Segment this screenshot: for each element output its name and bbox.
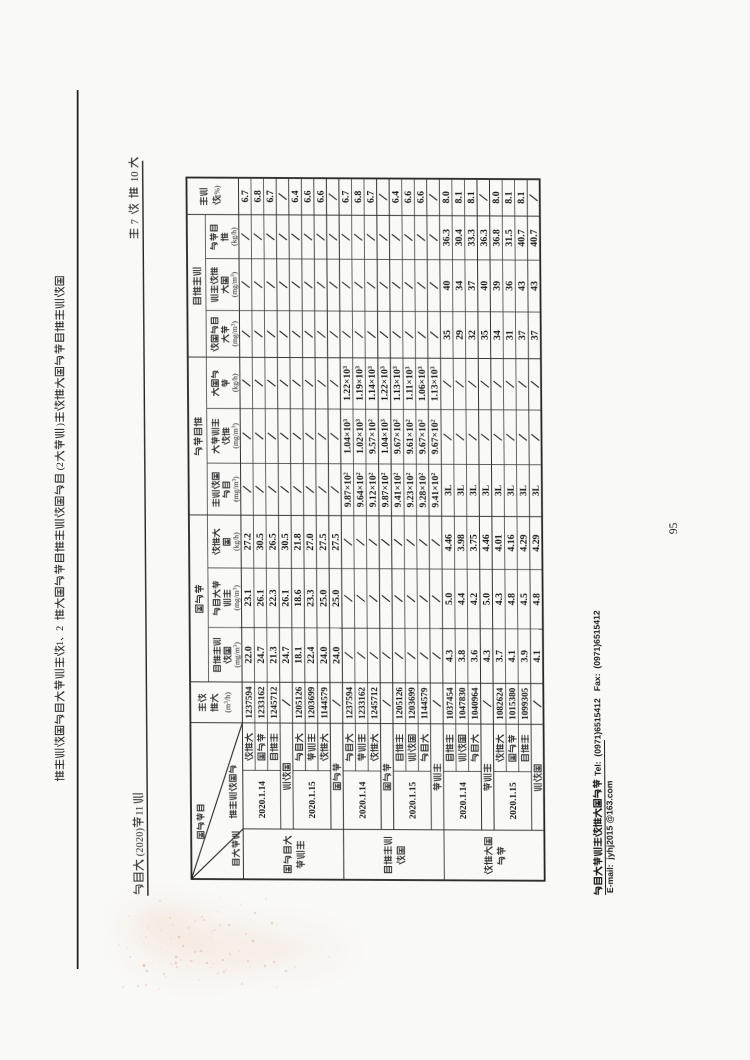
- svg-text:1.14×103: 1.14×103: [367, 366, 378, 401]
- svg-text:1.11×103: 1.11×103: [404, 367, 415, 401]
- svg-text:3.9: 3.9: [519, 650, 530, 662]
- svg-text:35: 35: [479, 330, 490, 340]
- svg-text:22.0: 22.0: [243, 646, 254, 663]
- svg-text:10: 10: [130, 171, 141, 182]
- svg-text:7: 7: [130, 219, 141, 224]
- svg-text:3L: 3L: [531, 485, 542, 496]
- svg-text:9.87×102: 9.87×102: [380, 472, 391, 507]
- svg-text:1047830: 1047830: [457, 687, 467, 720]
- svg-text:1203699: 1203699: [407, 687, 417, 720]
- svg-text:25.0: 25.0: [331, 590, 342, 607]
- svg-text:4.8: 4.8: [532, 593, 543, 605]
- svg-text:9.28×102: 9.28×102: [418, 473, 429, 508]
- svg-text:8.1: 8.1: [453, 191, 464, 203]
- svg-text:6.7: 6.7: [265, 190, 276, 202]
- svg-text:1082624: 1082624: [495, 687, 505, 720]
- svg-text:3.98: 3.98: [456, 534, 467, 551]
- svg-text:1040964: 1040964: [470, 687, 480, 720]
- svg-text:9.57×102: 9.57×102: [367, 419, 378, 454]
- svg-text:1205126: 1205126: [394, 687, 404, 720]
- svg-text:11: 11: [134, 806, 145, 816]
- svg-text:6.6: 6.6: [403, 191, 414, 203]
- svg-text:): ): [56, 423, 66, 426]
- svg-text:40.7: 40.7: [516, 229, 527, 246]
- svg-text:(kg/h): (kg/h): [230, 373, 239, 392]
- svg-text:(mg/m3): (mg/m3): [231, 423, 240, 449]
- svg-text:(mg/m3): (mg/m3): [230, 271, 239, 297]
- svg-text:9.67×102: 9.67×102: [430, 419, 441, 454]
- svg-text:9.12×102: 9.12×102: [368, 472, 379, 507]
- svg-text:2020.1.14: 2020.1.14: [459, 782, 469, 820]
- svg-text:22.3: 22.3: [268, 589, 279, 606]
- svg-text:4.5: 4.5: [519, 593, 530, 605]
- svg-text:36.3: 36.3: [479, 229, 490, 246]
- svg-text:2020.1.14: 2020.1.14: [258, 781, 268, 819]
- svg-text:(2020): (2020): [135, 828, 146, 857]
- svg-text:34: 34: [454, 281, 465, 291]
- svg-text:4.16: 4.16: [506, 534, 517, 551]
- svg-text:1237594: 1237594: [344, 686, 354, 719]
- svg-text:(2: (2: [56, 462, 66, 470]
- svg-text:2020.1.14: 2020.1.14: [358, 781, 368, 819]
- svg-text:3.7: 3.7: [494, 650, 505, 662]
- svg-text:1.06×103: 1.06×103: [417, 366, 428, 401]
- svg-text:(mg/m3): (mg/m3): [230, 321, 239, 347]
- svg-text:37: 37: [530, 330, 541, 340]
- svg-text:43: 43: [529, 281, 540, 291]
- svg-text:23.1: 23.1: [243, 589, 254, 606]
- svg-text:4.29: 4.29: [519, 534, 530, 551]
- svg-text:24.0: 24.0: [331, 647, 342, 664]
- svg-text:1.19×103: 1.19×103: [354, 366, 365, 401]
- svg-text:95: 95: [668, 522, 680, 534]
- svg-text:27.5: 27.5: [330, 533, 341, 550]
- svg-text:4.46: 4.46: [481, 534, 492, 551]
- svg-text:8.0: 8.0: [491, 191, 502, 203]
- svg-text:6.7: 6.7: [340, 191, 351, 203]
- svg-text:6.4: 6.4: [391, 191, 402, 203]
- svg-text:8.1: 8.1: [504, 191, 515, 203]
- svg-text:1、2: 1、2: [55, 626, 66, 646]
- svg-text:43: 43: [517, 281, 528, 291]
- svg-text:(kg/h): (kg/h): [232, 532, 241, 551]
- svg-text:6.6: 6.6: [416, 191, 427, 203]
- svg-text:(%): (%): [213, 185, 222, 197]
- svg-text:26.1: 26.1: [255, 589, 266, 606]
- svg-text:1144579: 1144579: [319, 687, 329, 719]
- svg-text:1203699: 1203699: [306, 686, 316, 719]
- svg-text:30.4: 30.4: [454, 229, 465, 246]
- svg-text:5.0: 5.0: [481, 593, 492, 605]
- svg-text:18.1: 18.1: [294, 646, 305, 663]
- svg-text:3L: 3L: [493, 485, 504, 496]
- svg-text:1037454: 1037454: [444, 687, 454, 720]
- svg-text:3L: 3L: [481, 485, 492, 496]
- svg-text:40.7: 40.7: [529, 229, 540, 246]
- svg-text:31: 31: [505, 330, 516, 340]
- svg-text:30.5: 30.5: [255, 533, 266, 550]
- svg-text:23.3: 23.3: [306, 589, 317, 606]
- svg-text:37: 37: [467, 281, 478, 291]
- svg-text:24.7: 24.7: [281, 646, 292, 663]
- svg-text:6.4: 6.4: [290, 190, 301, 202]
- svg-text:9.61×102: 9.61×102: [405, 419, 416, 454]
- svg-text:8.1: 8.1: [516, 191, 527, 203]
- svg-text:1245712: 1245712: [369, 687, 379, 720]
- svg-text:36.3: 36.3: [441, 229, 452, 246]
- svg-text:4.2: 4.2: [469, 593, 480, 605]
- svg-text:4.29: 4.29: [531, 534, 542, 551]
- svg-text:27.2: 27.2: [243, 533, 254, 550]
- svg-text:26.5: 26.5: [268, 533, 279, 550]
- svg-text:(kg/h): (kg/h): [229, 227, 238, 246]
- svg-text:1237594: 1237594: [244, 686, 254, 719]
- svg-text:8.0: 8.0: [441, 191, 452, 203]
- svg-text:26.1: 26.1: [281, 589, 292, 606]
- svg-text:Tel: (0971)6515412 Fax: (0: Tel: (0971)6515412 Fax: (0971)6515412: [592, 610, 603, 776]
- svg-text:1.22×103: 1.22×103: [342, 366, 353, 401]
- svg-text:2020.1.15: 2020.1.15: [408, 781, 418, 819]
- svg-text:3L: 3L: [506, 485, 517, 496]
- svg-text:37: 37: [517, 330, 528, 340]
- svg-text:9.67×102: 9.67×102: [417, 419, 428, 454]
- svg-text:36: 36: [504, 281, 515, 291]
- svg-text:1233162: 1233162: [256, 686, 266, 719]
- svg-text:40: 40: [479, 281, 490, 291]
- svg-text:(mg/m3): (mg/m3): [232, 585, 241, 611]
- svg-text:34: 34: [492, 330, 503, 340]
- svg-text:25.0: 25.0: [318, 590, 329, 607]
- svg-text:6.7: 6.7: [240, 190, 251, 202]
- svg-text:3.75: 3.75: [468, 534, 479, 551]
- svg-text:E-mail: jyhj2015 @163.com: E-mail: jyhj2015 @163.com: [604, 780, 615, 893]
- svg-text:21.3: 21.3: [268, 646, 279, 663]
- svg-text:1.13×103: 1.13×103: [392, 366, 403, 401]
- svg-text:5.0: 5.0: [444, 593, 455, 605]
- svg-text:6.7: 6.7: [366, 191, 377, 203]
- svg-text:3L: 3L: [443, 485, 454, 496]
- svg-text:4.8: 4.8: [506, 593, 517, 605]
- svg-text:24.0: 24.0: [319, 647, 330, 664]
- svg-text:1245712: 1245712: [269, 686, 279, 719]
- svg-text:4.1: 4.1: [532, 650, 543, 662]
- svg-text:32: 32: [467, 330, 478, 340]
- svg-text:6.6: 6.6: [315, 190, 326, 202]
- svg-text:4.3: 4.3: [482, 650, 493, 662]
- svg-text:4.3: 4.3: [444, 650, 455, 662]
- svg-text:6.8: 6.8: [253, 190, 264, 202]
- svg-text:27.5: 27.5: [318, 533, 329, 550]
- svg-text:6.8: 6.8: [353, 191, 364, 203]
- svg-text:36.8: 36.8: [491, 229, 502, 246]
- svg-text:3L: 3L: [518, 485, 529, 496]
- svg-text:1233162: 1233162: [357, 687, 367, 720]
- svg-text:4.4: 4.4: [456, 593, 467, 605]
- svg-text:1.04×103: 1.04×103: [342, 419, 353, 454]
- svg-text:31.5: 31.5: [504, 229, 515, 246]
- svg-text:8.1: 8.1: [466, 191, 477, 203]
- svg-text:(mg/m3): (mg/m3): [231, 476, 240, 502]
- svg-text:(mg/m3): (mg/m3): [232, 642, 241, 668]
- svg-text:39: 39: [492, 281, 503, 291]
- svg-text:9.64×102: 9.64×102: [355, 472, 366, 507]
- svg-text:4.01: 4.01: [494, 534, 505, 551]
- svg-text:9.23×102: 9.23×102: [405, 473, 416, 508]
- svg-text:3L: 3L: [455, 485, 466, 496]
- svg-text:40: 40: [441, 281, 452, 291]
- svg-text:2020.1.15: 2020.1.15: [509, 782, 519, 820]
- svg-text:1015380: 1015380: [507, 687, 517, 720]
- svg-text:27.0: 27.0: [305, 533, 316, 550]
- svg-text:18.6: 18.6: [293, 589, 304, 606]
- svg-text:1.04×103: 1.04×103: [380, 419, 391, 454]
- svg-text:1.22×103: 1.22×103: [379, 366, 390, 401]
- svg-text:9.67×102: 9.67×102: [392, 419, 403, 454]
- svg-text:29: 29: [454, 330, 465, 340]
- svg-text:1099305: 1099305: [520, 687, 530, 720]
- svg-text:33.3: 33.3: [466, 229, 477, 246]
- svg-text:35: 35: [442, 330, 453, 340]
- svg-text:3L: 3L: [468, 485, 479, 496]
- svg-text:1205126: 1205126: [294, 686, 304, 719]
- svg-text:1144579: 1144579: [419, 687, 429, 719]
- svg-text:(m3/h): (m3/h): [223, 692, 232, 713]
- svg-text:3.6: 3.6: [469, 650, 480, 662]
- svg-text:4.3: 4.3: [494, 593, 505, 605]
- svg-text:1.13×103: 1.13×103: [430, 366, 441, 401]
- svg-text:1.02×103: 1.02×103: [355, 419, 366, 454]
- svg-text:3.8: 3.8: [457, 650, 468, 662]
- svg-text:24.7: 24.7: [256, 646, 267, 663]
- svg-text:21.8: 21.8: [293, 533, 304, 550]
- svg-text:6.6: 6.6: [303, 190, 314, 202]
- svg-text:4.46: 4.46: [443, 534, 454, 551]
- svg-text:22.4: 22.4: [306, 646, 317, 663]
- svg-text:4.1: 4.1: [507, 650, 518, 662]
- svg-text:2020.1.15: 2020.1.15: [308, 781, 318, 819]
- svg-text:9.41×102: 9.41×102: [430, 473, 441, 508]
- svg-text:9.41×102: 9.41×102: [393, 472, 404, 507]
- svg-text:30.5: 30.5: [280, 533, 291, 550]
- svg-text:9.87×102: 9.87×102: [342, 472, 353, 507]
